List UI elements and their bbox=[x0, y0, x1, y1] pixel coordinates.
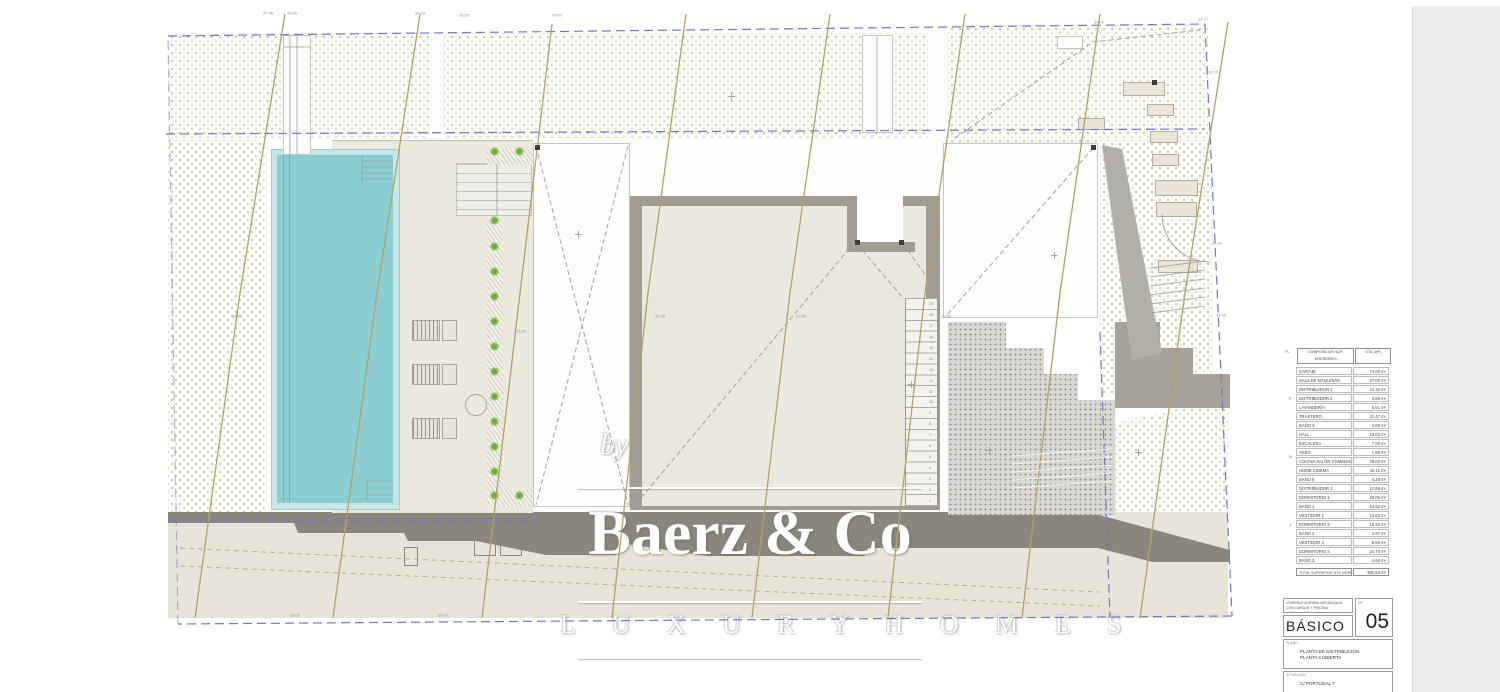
room-name-cell: DISTRIBUIDOR 1 bbox=[1296, 385, 1352, 393]
table-row: BAÑO 114.62 m² bbox=[1296, 502, 1393, 510]
corner-marker bbox=[1091, 145, 1096, 150]
room-area-cell: 14.62 m² bbox=[1353, 502, 1389, 510]
location-label: SITUACIÓN bbox=[1286, 673, 1306, 677]
room-name-cell: DORMITORIO 3 bbox=[1296, 547, 1352, 555]
table-row: DISTRIBUIDOR 112.32 m² bbox=[1296, 385, 1393, 393]
room-name-cell: ASEO bbox=[1296, 448, 1352, 456]
garden-planter bbox=[1123, 82, 1165, 96]
stair-step-number: 11 bbox=[929, 387, 939, 398]
stair-step-number: 2 bbox=[929, 485, 939, 496]
stair-step-number: 3 bbox=[929, 474, 939, 485]
room-name-cell: BAÑO 4 bbox=[1296, 421, 1352, 429]
garage-roof bbox=[943, 143, 1098, 318]
room-name-cell: LAVANDERÍA bbox=[1296, 403, 1352, 411]
lounger-pillow bbox=[442, 364, 457, 385]
lounger-icon bbox=[412, 364, 440, 385]
room-name-cell: COCINA SALÓN COMEDOR bbox=[1296, 457, 1352, 465]
stair-step-number: 5 bbox=[929, 452, 939, 463]
table-row: GARAJE74.00 m² bbox=[1296, 367, 1393, 375]
table-row: DORMITORIO 216.25 m² bbox=[1296, 520, 1393, 528]
room-area-cell: 4.28 m² bbox=[1353, 475, 1389, 483]
garden-planter bbox=[1155, 180, 1198, 196]
stair-step-number: 1 bbox=[929, 496, 939, 507]
room-name-cell: BAÑO 1 bbox=[1296, 502, 1352, 510]
elevation-label: 28.00 bbox=[287, 11, 297, 16]
room-area-cell: 20.06 m² bbox=[1353, 493, 1389, 501]
stair-step-number: 4 bbox=[929, 463, 939, 474]
room-name-cell: BAÑO 3 bbox=[1296, 556, 1352, 564]
room-name-cell: VESTIDOR 2 bbox=[1296, 538, 1352, 546]
table-row: BAÑO 54.28 m² bbox=[1296, 475, 1393, 483]
area-table-group-floor: P bbox=[1285, 367, 1296, 430]
stair-step-number: 7 bbox=[929, 430, 939, 441]
elevation-label: 34.77 bbox=[1198, 17, 1208, 22]
plan-name-label: PLANO bbox=[1286, 641, 1298, 645]
area-table-group-rows: DISTRIBUIDOR 312.69 m²DORMITORIO 120.06 … bbox=[1296, 484, 1393, 565]
viewer-gutter bbox=[1412, 6, 1500, 692]
survey-cross-icon bbox=[908, 381, 915, 388]
stair-step-number: 16 bbox=[929, 332, 939, 343]
plan-sheet: 19181716151413121110987654321 bbox=[0, 0, 1500, 692]
room-area-cell: 4.88 m² bbox=[1353, 421, 1389, 429]
table-row: VESTIDOR 112.63 m² bbox=[1296, 511, 1393, 519]
corner-marker bbox=[855, 240, 860, 245]
table-row: DORMITORIO 324.70 m² bbox=[1296, 547, 1393, 555]
survey-cross-icon bbox=[986, 447, 993, 454]
phase-label: BÁSICO bbox=[1283, 615, 1353, 637]
lounger-pillow bbox=[442, 320, 457, 341]
round-table bbox=[465, 394, 487, 416]
stair-step-number: 8 bbox=[929, 419, 939, 430]
room-name-cell: DORMITORIO 1 bbox=[1296, 493, 1352, 501]
sun-loungers bbox=[412, 320, 457, 341]
terrain-left-strip bbox=[168, 140, 265, 512]
table-row: BAÑO 24.97 m² bbox=[1296, 529, 1393, 537]
plant-icon bbox=[515, 147, 524, 156]
stair-step-numbers: 19181716151413121110987654321 bbox=[929, 299, 939, 507]
plant-icon bbox=[490, 367, 499, 376]
stair-step-number: 12 bbox=[929, 376, 939, 387]
room-area-cell: 16.25 m² bbox=[1353, 520, 1389, 528]
stair-step-number: 17 bbox=[929, 321, 939, 332]
table-row: HALL13.03 m² bbox=[1296, 430, 1393, 438]
lounger-pillow bbox=[442, 418, 457, 439]
area-table-header-floor: PL. bbox=[1285, 348, 1296, 364]
garden-planter bbox=[1147, 104, 1174, 116]
room-name-cell: HALL bbox=[1296, 430, 1352, 438]
table-row: DISTRIBUIDOR 23.88 m² bbox=[1296, 394, 1393, 402]
stair-step-number: 6 bbox=[929, 441, 939, 452]
room-name-cell: BAÑO 2 bbox=[1296, 529, 1352, 537]
sheet-number-label: Nº bbox=[1358, 600, 1362, 605]
room-area-cell: 12.69 m² bbox=[1353, 484, 1389, 492]
elevation-label: 28.50 bbox=[459, 13, 469, 18]
elevation-label: 27.98 bbox=[263, 11, 273, 16]
room-area-cell: 4.97 m² bbox=[1353, 529, 1389, 537]
plant-icon bbox=[490, 242, 499, 251]
deck-stairs bbox=[456, 163, 532, 216]
area-table-group: PGARAJE74.00 m²SALA DE MÁQUINAS27.00 m²D… bbox=[1285, 367, 1393, 430]
table-row: HOME CINEMA18.11 m² bbox=[1296, 466, 1393, 474]
roof-patio-opening bbox=[857, 196, 903, 242]
stair-step-number: 9 bbox=[929, 408, 939, 419]
room-name-cell: ESCALERA bbox=[1296, 439, 1352, 447]
room-name-cell: TRASTERO bbox=[1296, 412, 1352, 420]
area-table-header-name: COMPOSICIÓN SUP. INTERIORES bbox=[1297, 348, 1354, 364]
room-area-cell: 74.00 m² bbox=[1353, 367, 1389, 375]
garden-planter bbox=[1150, 131, 1178, 143]
table-row: ASEO1.86 m² bbox=[1296, 448, 1393, 456]
table-row: DORMITORIO 120.06 m² bbox=[1296, 493, 1393, 501]
project-line1: VIVIENDA UNIFAMILIAR AISLADA bbox=[1286, 601, 1352, 606]
sheet-number: 05 bbox=[1366, 610, 1389, 634]
room-name-cell: DORMITORIO 2 bbox=[1296, 520, 1352, 528]
location-box: SITUACIÓN C/ PORTUGAL 7 bbox=[1283, 671, 1393, 692]
project-line2: CON GARAJE Y PISCINA bbox=[1286, 606, 1352, 611]
small-structure bbox=[1057, 36, 1083, 49]
stair-step-number: 13 bbox=[929, 365, 939, 376]
room-name-cell: VESTIDOR 1 bbox=[1296, 511, 1352, 519]
plant-icon bbox=[490, 467, 499, 476]
stair-step-number: 15 bbox=[929, 343, 939, 354]
area-table-group: 1DISTRIBUIDOR 312.69 m²DORMITORIO 120.06… bbox=[1285, 484, 1393, 565]
table-row: COCINA SALÓN COMEDOR78.03 m² bbox=[1296, 457, 1393, 465]
table-row: LAVANDERÍA6.51 m² bbox=[1296, 403, 1393, 411]
total-value: 381.54 m² bbox=[1353, 568, 1389, 576]
corner-marker bbox=[899, 240, 904, 245]
room-name-cell: GARAJE bbox=[1296, 367, 1352, 375]
table-row: DISTRIBUIDOR 312.69 m² bbox=[1296, 484, 1393, 492]
room-area-cell: 11.47 m² bbox=[1353, 412, 1389, 420]
room-name-cell: HOME CINEMA bbox=[1296, 466, 1352, 474]
west-wing-roof bbox=[533, 143, 630, 507]
area-table-group-rows: HALL13.03 m²ESCALERA7.00 m²ASEO1.86 m²CO… bbox=[1296, 430, 1393, 484]
plant-icon bbox=[490, 147, 499, 156]
survey-cross-icon bbox=[1135, 449, 1142, 456]
room-name-cell: SALA DE MÁQUINAS bbox=[1296, 376, 1352, 384]
planting-strip bbox=[487, 218, 503, 494]
area-table-header-value: ÚTIL (m²) bbox=[1355, 348, 1391, 364]
east-terrace bbox=[948, 322, 1115, 515]
elevation-label: 34.88 bbox=[1216, 313, 1226, 318]
garden-planter bbox=[1152, 154, 1179, 166]
swimming-pool bbox=[277, 155, 393, 503]
room-name-cell: BAÑO 5 bbox=[1296, 475, 1352, 483]
north-margin bbox=[630, 143, 943, 196]
stair-step-number: 14 bbox=[929, 354, 939, 365]
area-table-total-row: TOTAL SUPERFICIE ÚTIL INTERIOR 381.54 m² bbox=[1296, 568, 1393, 576]
table-row: TRASTERO11.47 m² bbox=[1296, 412, 1393, 420]
room-area-cell: 4.68 m² bbox=[1353, 556, 1389, 564]
stair-step-number: 19 bbox=[929, 299, 939, 310]
room-area-cell: 1.86 m² bbox=[1353, 448, 1389, 456]
title-block: VIVIENDA UNIFAMILIAR AISLADA CON GARAJE … bbox=[1283, 598, 1395, 692]
corner-marker bbox=[1152, 80, 1157, 85]
street-post bbox=[404, 547, 418, 566]
exterior-stair-north-1 bbox=[283, 35, 311, 155]
room-name-cell: DISTRIBUIDOR 3 bbox=[1296, 484, 1352, 492]
path-gap-1 bbox=[429, 33, 444, 140]
area-table-group-floor: B bbox=[1285, 430, 1296, 484]
corner-marker bbox=[535, 145, 540, 150]
area-table-group: BHALL13.03 m²ESCALERA7.00 m²ASEO1.86 m²C… bbox=[1285, 430, 1393, 484]
plant-icon bbox=[490, 417, 499, 426]
exterior-stair-north-2 bbox=[862, 35, 893, 133]
room-area-cell: 27.00 m² bbox=[1353, 376, 1389, 384]
plant-icon bbox=[490, 216, 499, 225]
garden-planter bbox=[1158, 260, 1198, 273]
elevation-label: 29.00 bbox=[552, 13, 562, 18]
sun-loungers bbox=[412, 364, 457, 385]
plan-name-box: PLANO PLANTA DE DISTRIBUCIÓN PLANTA CUBI… bbox=[1283, 639, 1393, 669]
lounger-icon bbox=[412, 320, 440, 341]
project-title: VIVIENDA UNIFAMILIAR AISLADA CON GARAJE … bbox=[1283, 598, 1353, 613]
plant-icon bbox=[490, 292, 499, 301]
garden-planter bbox=[1078, 118, 1105, 130]
plant-icon bbox=[515, 491, 524, 500]
room-area-cell: 7.00 m² bbox=[1353, 439, 1389, 447]
sun-loungers bbox=[412, 418, 457, 439]
path-gap-2 bbox=[928, 33, 948, 143]
elevation-label: 28.03 bbox=[415, 11, 425, 16]
room-area-cell: 12.63 m² bbox=[1353, 511, 1389, 519]
watermark-rule-bottom bbox=[578, 657, 922, 659]
room-area-cell: 13.03 m² bbox=[1353, 430, 1389, 438]
garden-planter bbox=[1156, 202, 1197, 217]
room-area-cell: 18.11 m² bbox=[1353, 466, 1389, 474]
room-name-cell: DISTRIBUIDOR 2 bbox=[1296, 394, 1352, 402]
stair-step-number: 18 bbox=[929, 310, 939, 321]
sheet-number-box: Nº 05 bbox=[1355, 598, 1393, 637]
lounger-icon bbox=[412, 418, 440, 439]
location-value: C/ PORTUGAL 7 bbox=[1300, 681, 1335, 687]
table-row: SALA DE MÁQUINAS27.00 m² bbox=[1296, 376, 1393, 384]
room-area-cell: 12.32 m² bbox=[1353, 385, 1389, 393]
table-row: VESTIDOR 26.50 m² bbox=[1296, 538, 1393, 546]
table-row: ESCALERA7.00 m² bbox=[1296, 439, 1393, 447]
plan-name-line2: PLANTA CUBIERTA bbox=[1300, 655, 1359, 661]
room-area-cell: 6.51 m² bbox=[1353, 403, 1389, 411]
room-area-cell: 24.70 m² bbox=[1353, 547, 1389, 555]
room-area-cell: 3.88 m² bbox=[1353, 394, 1389, 402]
plant-icon bbox=[490, 342, 499, 351]
table-row: BAÑO 44.88 m² bbox=[1296, 421, 1393, 429]
street-box-2 bbox=[500, 537, 522, 556]
survey-cross-icon bbox=[575, 231, 582, 238]
table-row: BAÑO 34.68 m² bbox=[1296, 556, 1393, 564]
plant-icon bbox=[490, 442, 499, 451]
survey-cross-icon bbox=[728, 93, 735, 100]
area-table-group-rows: GARAJE74.00 m²SALA DE MÁQUINAS27.00 m²DI… bbox=[1296, 367, 1393, 430]
elevation-label: 34.00 bbox=[1094, 20, 1104, 25]
plant-icon bbox=[490, 491, 499, 500]
area-table-group-floor: 1 bbox=[1285, 484, 1296, 565]
plant-icon bbox=[490, 392, 499, 401]
area-table-groups: PGARAJE74.00 m²SALA DE MÁQUINAS27.00 m²D… bbox=[1285, 367, 1393, 565]
room-area-cell: 78.03 m² bbox=[1353, 457, 1389, 465]
area-table: PL. COMPOSICIÓN SUP. INTERIORES ÚTIL (m²… bbox=[1285, 348, 1393, 576]
survey-cross-icon bbox=[1051, 252, 1058, 259]
stair-step-number: 10 bbox=[929, 397, 939, 408]
total-label: TOTAL SUPERFICIE ÚTIL INTERIOR bbox=[1296, 568, 1352, 576]
elevation-label: 34.90 bbox=[1212, 241, 1222, 246]
plant-icon bbox=[490, 267, 499, 276]
pool-lane-line bbox=[283, 155, 284, 503]
room-area-cell: 6.50 m² bbox=[1353, 538, 1389, 546]
street-box-1 bbox=[474, 537, 496, 556]
pool-lane-line bbox=[289, 155, 290, 503]
plant-icon bbox=[490, 317, 499, 326]
elevation-label: 34.79 bbox=[1208, 70, 1218, 75]
area-table-header: PL. COMPOSICIÓN SUP. INTERIORES ÚTIL (m²… bbox=[1285, 348, 1393, 364]
